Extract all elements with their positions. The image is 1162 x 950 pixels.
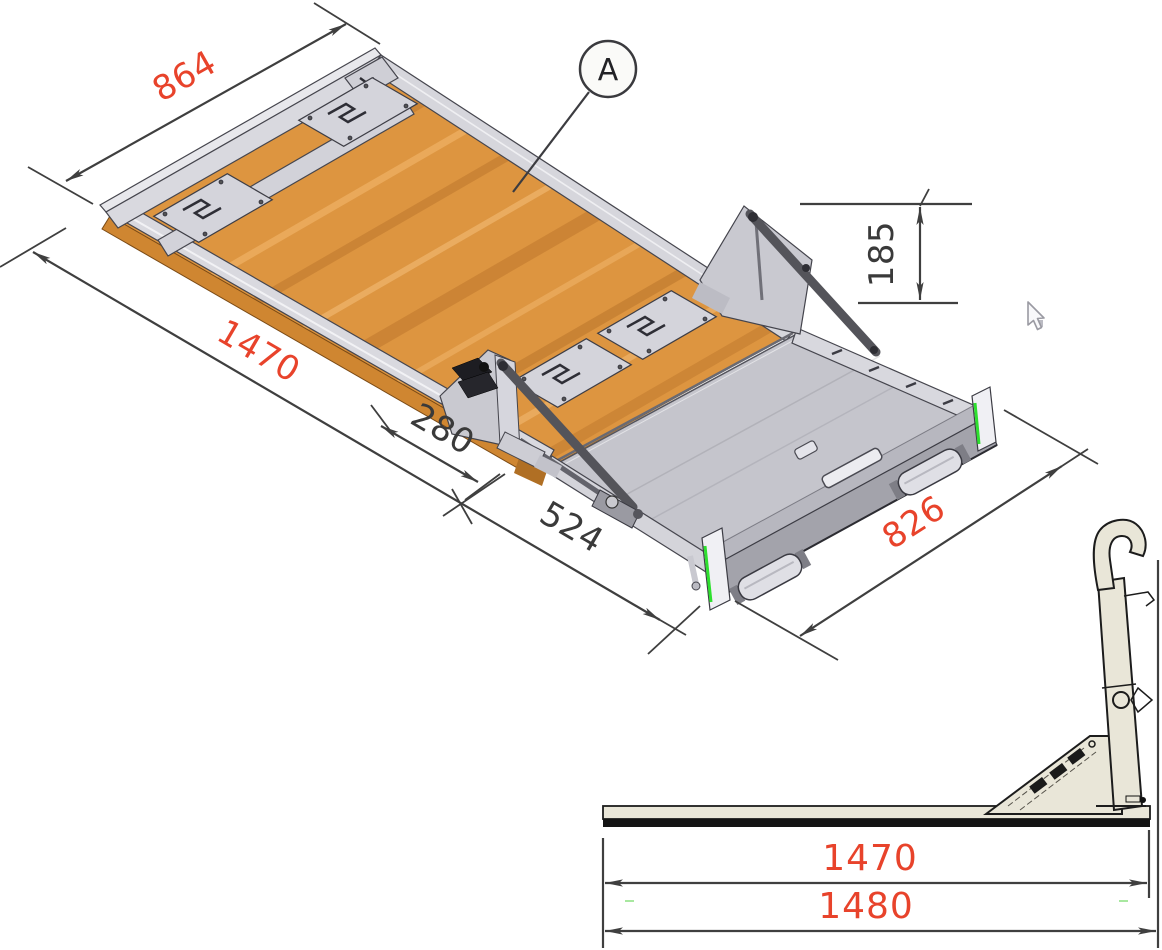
detail-balloon-A[interactable]: A: [513, 41, 636, 192]
dim-label-1480[interactable]: 1480: [818, 886, 914, 927]
cad-drawing-canvas[interactable]: 864 1470 280 524 826 185 A: [0, 0, 1162, 950]
dimension-185[interactable]: 185: [800, 189, 972, 303]
balloon-label[interactable]: A: [598, 53, 619, 88]
cad-viewport[interactable]: 864 1470 280 524 826 185 A: [0, 0, 1162, 950]
pivot-bolt: [802, 264, 810, 272]
pivot-bolt: [870, 346, 878, 354]
dim-label-1470-side[interactable]: 1470: [822, 838, 918, 879]
pivot-bolt: [498, 361, 508, 371]
base-bar-underside: [603, 819, 1150, 827]
hook-wire: [1124, 592, 1154, 606]
dim-label-185[interactable]: 185: [862, 221, 902, 287]
arrow-cursor-icon: [1028, 302, 1044, 330]
pivot-bolt: [748, 212, 758, 222]
